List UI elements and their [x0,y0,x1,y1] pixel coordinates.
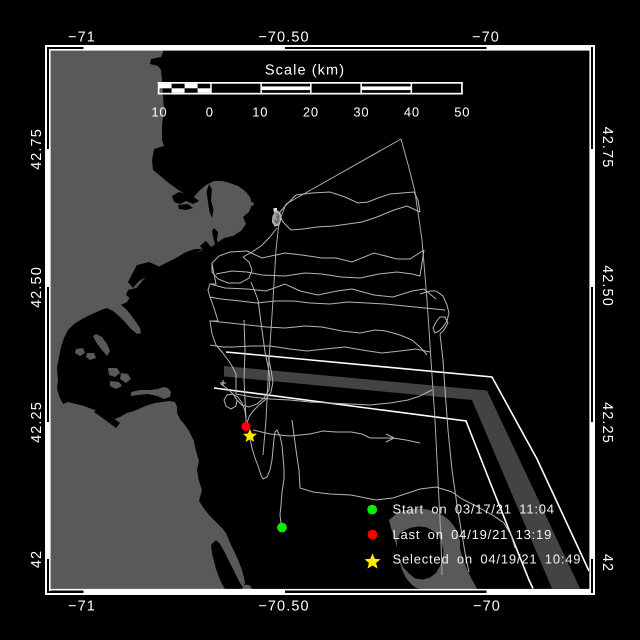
svg-text:−70: −70 [472,30,500,46]
svg-text:42.25: 42.25 [29,401,45,443]
svg-text:20: 20 [303,105,319,120]
svg-text:−71: −71 [68,599,96,615]
svg-text:−70: −70 [473,599,501,615]
svg-text:−70.50: −70.50 [258,599,309,615]
svg-text:10: 10 [151,105,167,120]
svg-text:Start on 03/17/21 11:04: Start on 03/17/21 11:04 [393,501,555,516]
svg-text:Last on 04/19/21 13:19: Last on 04/19/21 13:19 [393,527,553,542]
svg-text:0: 0 [206,105,214,120]
svg-text:30: 30 [353,105,369,120]
svg-text:−70.50: −70.50 [258,30,309,46]
svg-text:42: 42 [599,554,615,572]
svg-text:Scale (km): Scale (km) [265,63,345,79]
svg-text:42.25: 42.25 [599,402,615,444]
svg-text:42: 42 [29,550,45,568]
svg-text:42.75: 42.75 [599,127,615,169]
svg-text:42.75: 42.75 [29,128,45,170]
svg-text:10: 10 [252,105,268,120]
svg-text:40: 40 [404,105,420,120]
svg-text:Selected on 04/19/21 10:49: Selected on 04/19/21 10:49 [393,551,582,566]
svg-text:42.50: 42.50 [599,265,615,307]
svg-text:−71: −71 [68,30,96,46]
svg-text:50: 50 [454,105,470,120]
svg-text:42.50: 42.50 [29,266,45,308]
